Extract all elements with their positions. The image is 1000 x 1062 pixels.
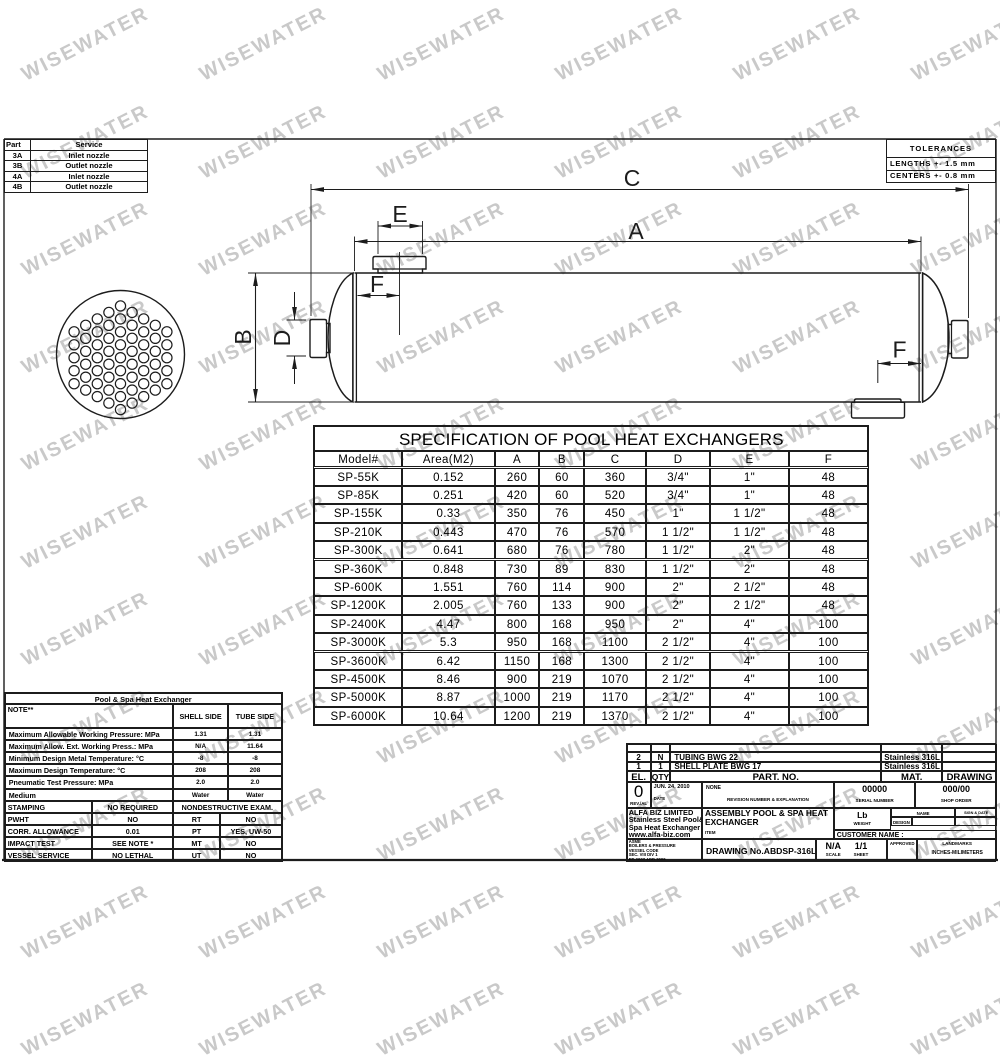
svg-text:F: F (370, 271, 384, 297)
svg-text:D: D (269, 330, 295, 347)
svg-text:A: A (628, 218, 644, 244)
svg-text:F: F (892, 337, 906, 363)
svg-text:B: B (230, 329, 256, 344)
svg-text:C: C (624, 165, 641, 191)
svg-text:E: E (392, 201, 407, 227)
